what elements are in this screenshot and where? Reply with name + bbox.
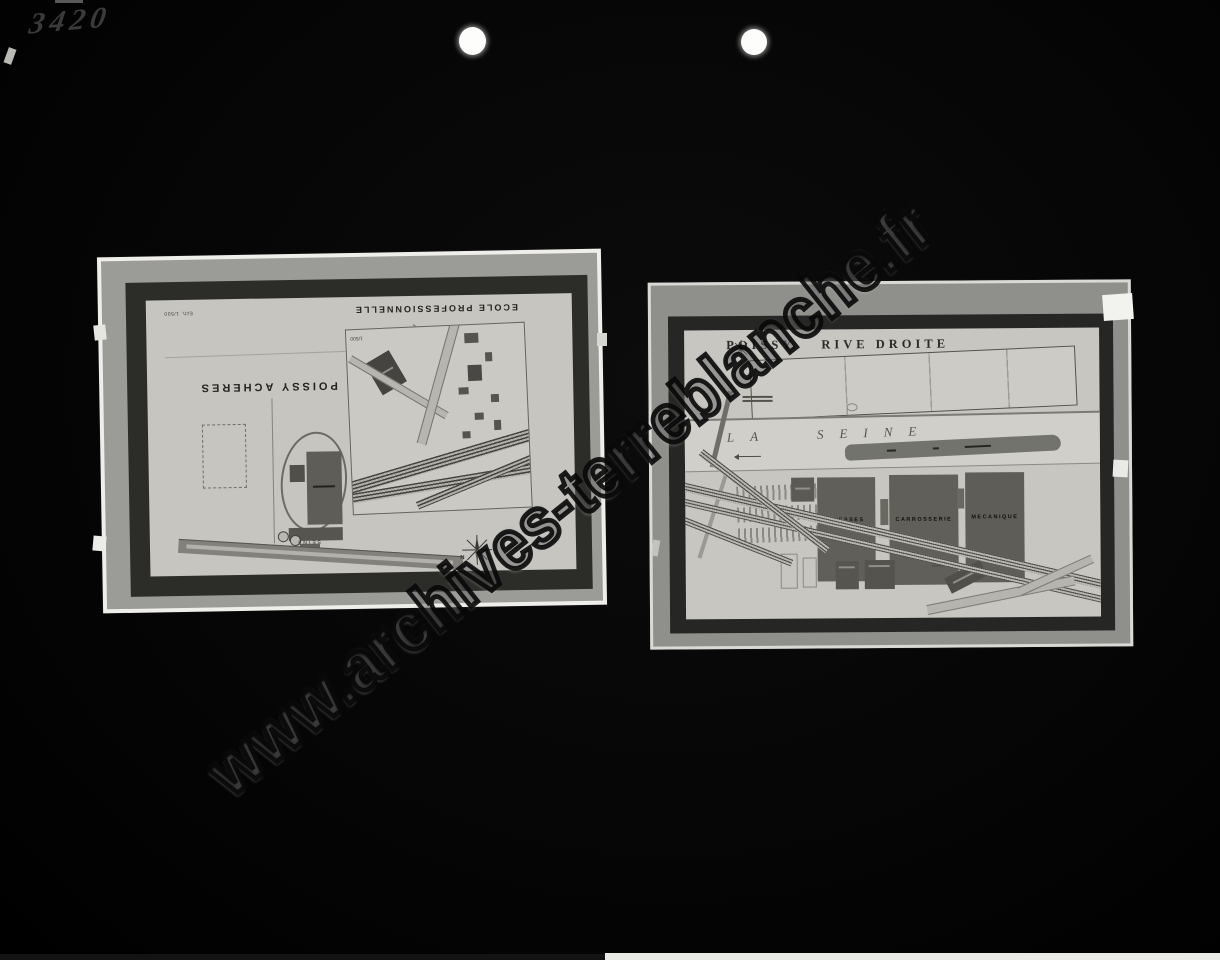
carrosserie-building: CARROSSERIE [889, 475, 959, 585]
small-factory-building [791, 478, 814, 502]
main-factory-building [306, 451, 342, 525]
photo-album-page: 3420 Ech. 1/500 POISSY ACHERES [0, 0, 1220, 960]
small-building [865, 560, 895, 589]
mounting-tab [1102, 293, 1134, 321]
small-building [290, 465, 305, 482]
parcel-dashed-outline [202, 424, 247, 489]
block [475, 413, 484, 420]
mounting-tab [597, 333, 607, 346]
punch-hole [459, 27, 486, 55]
small-pond [847, 403, 858, 411]
building-label: CARROSSERIE [889, 516, 958, 522]
inset-title: ECOLE PROFESSIONNELLE [347, 302, 525, 315]
mounting-tab [1113, 460, 1129, 478]
small-building [957, 488, 964, 508]
small-building [880, 499, 888, 525]
parcel-boundary [271, 398, 275, 543]
mounting-tab [93, 324, 107, 340]
block [462, 431, 470, 438]
block [491, 394, 499, 402]
avenue [417, 322, 462, 446]
paper-speck [55, 0, 83, 3]
plan-title: POISSY ACHERES [188, 379, 348, 394]
block [485, 352, 492, 361]
scale-note: Ech. 1/500 [164, 310, 193, 317]
mounting-tab [92, 535, 106, 551]
title-area: RIVE DROITE [821, 337, 949, 352]
river-label: SEINE [296, 539, 321, 545]
tank-circle [278, 531, 289, 542]
block [464, 333, 478, 344]
small-building [836, 561, 859, 589]
ecole-professionnelle-inset-map: 1/500 [345, 322, 533, 516]
punch-hole [741, 29, 767, 55]
page-bottom-edge [0, 954, 605, 960]
block [467, 365, 482, 382]
inset-scale-note: 1/500 [350, 335, 363, 342]
handwritten-archive-number: 3420 [27, 1, 114, 42]
block [458, 387, 468, 394]
building-label: MECANIQUE [965, 514, 1024, 520]
page-bottom-edge-light [605, 953, 1220, 960]
block [494, 420, 501, 430]
flow-arrow [735, 456, 761, 457]
building-outline [803, 558, 817, 588]
paper-speck [4, 47, 17, 65]
